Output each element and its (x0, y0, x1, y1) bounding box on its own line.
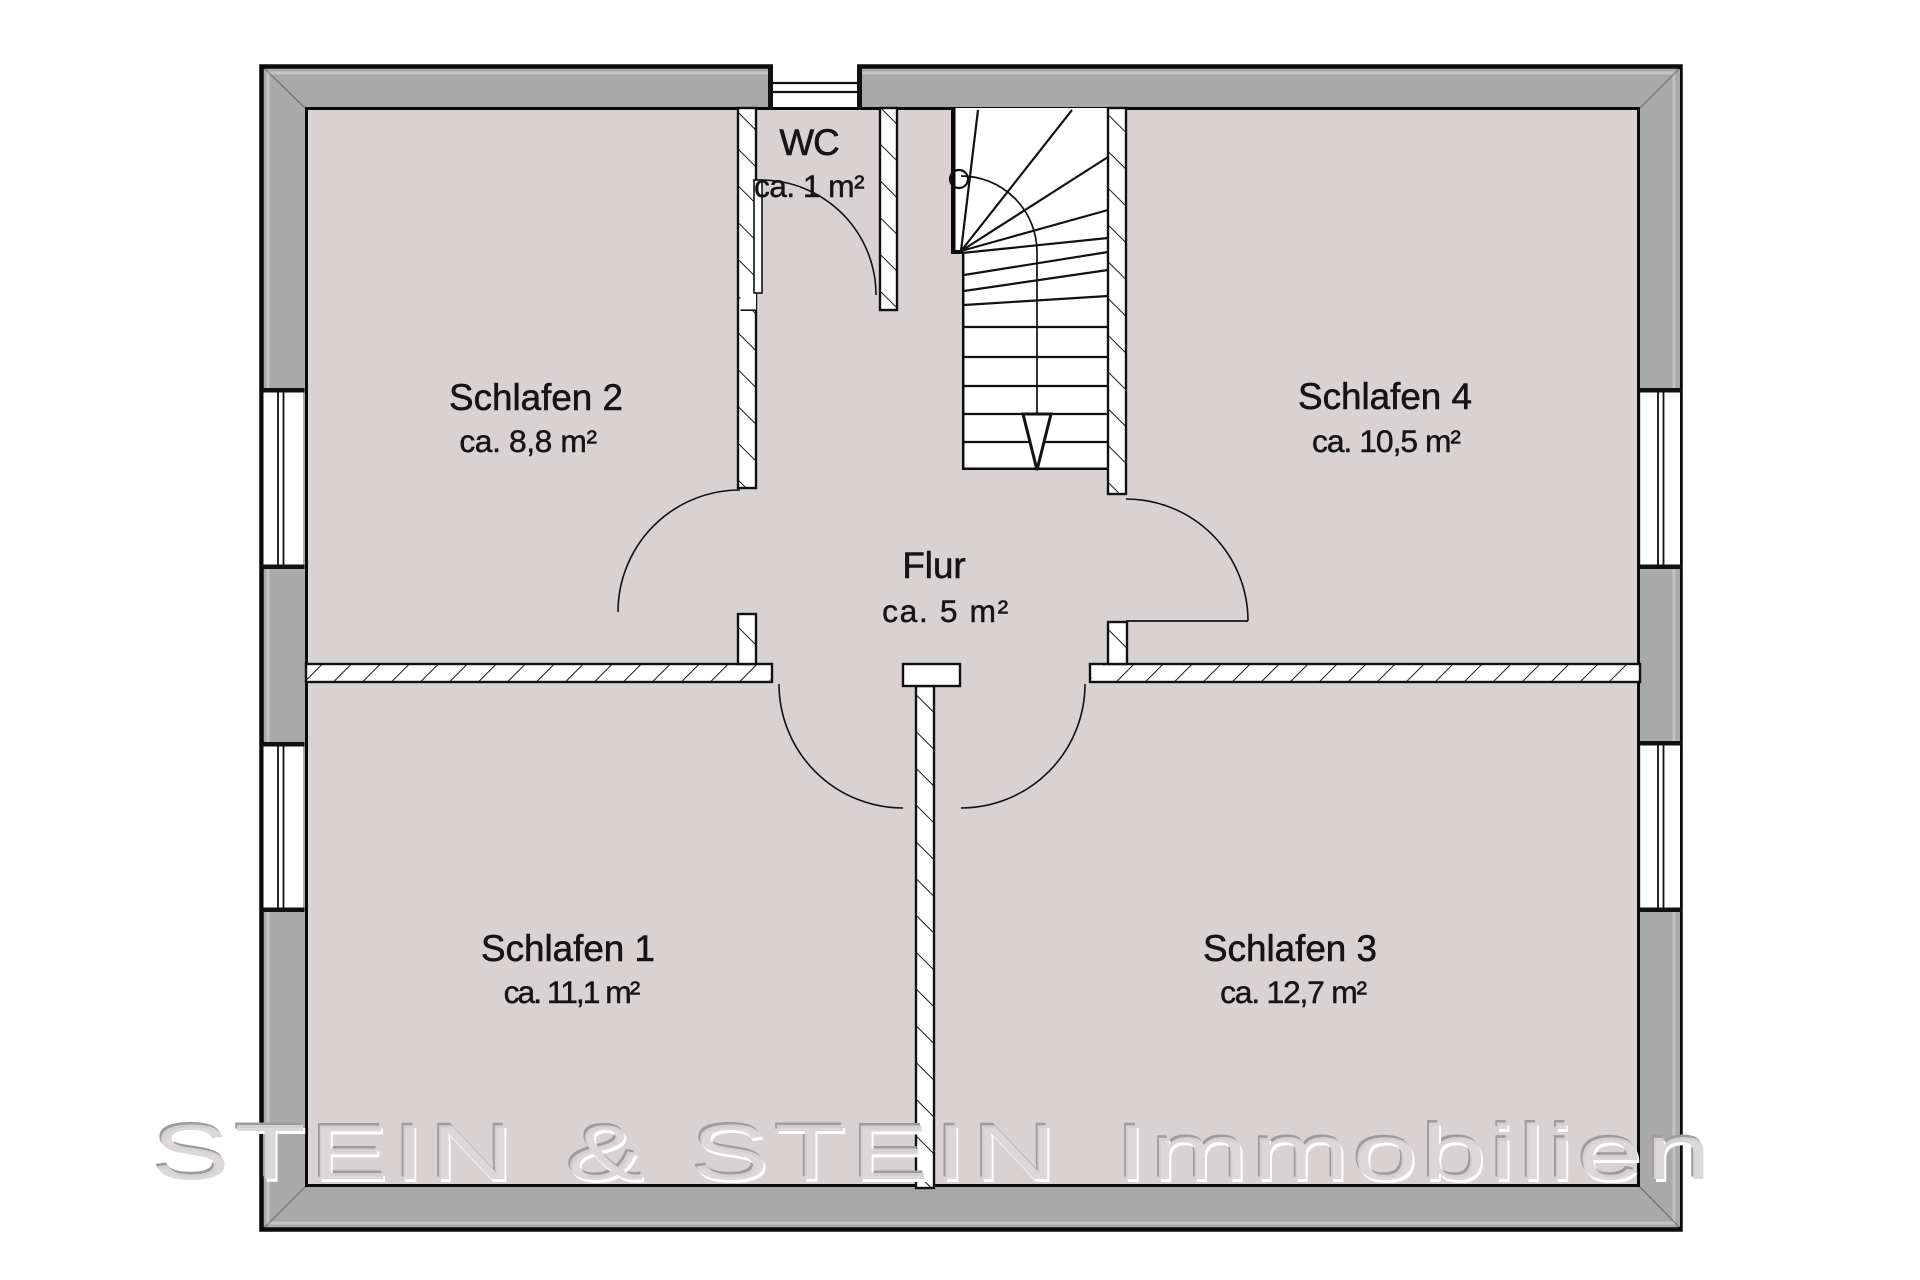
svg-text:STEIN: STEIN (691, 1109, 1057, 1196)
svg-text:ca. 11,1 m²: ca. 11,1 m² (504, 974, 640, 1010)
svg-text:Schlafen 3: Schlafen 3 (1203, 928, 1377, 969)
svg-text:WC: WC (779, 122, 839, 163)
svg-text:&: & (566, 1109, 644, 1196)
svg-text:Schlafen 1: Schlafen 1 (481, 928, 655, 969)
svg-text:Schlafen 2: Schlafen 2 (449, 377, 623, 418)
svg-text:ca. 1 m²: ca. 1 m² (754, 168, 864, 204)
svg-text:ca. 10,5 m²: ca. 10,5 m² (1312, 423, 1460, 459)
svg-text:ca. 12,7 m²: ca. 12,7 m² (1220, 974, 1366, 1010)
svg-text:ca. 8,8 m²: ca. 8,8 m² (459, 423, 596, 459)
svg-text:Schlafen 4: Schlafen 4 (1298, 376, 1472, 417)
svg-text:STEIN: STEIN (152, 1109, 514, 1196)
svg-text:Immobilien: Immobilien (1115, 1109, 1711, 1196)
svg-text:Flur: Flur (902, 545, 965, 586)
svg-text:ca. 5 m²: ca. 5 m² (882, 593, 1010, 629)
